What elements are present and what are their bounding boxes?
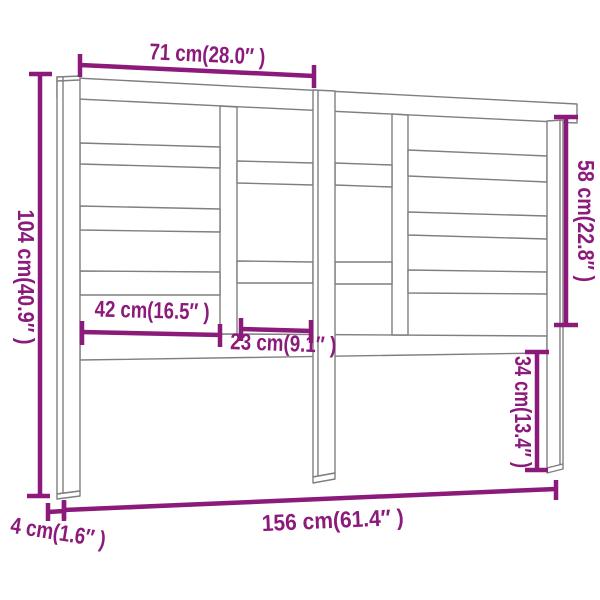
headboard-dimension-diagram: 71 cm(28.0″ ) 104 cm(40.9″ ) 58 cm(22.8″… [0, 0, 600, 600]
dim-label-overall-width: 156 cm(61.4″ ) [261, 504, 404, 536]
left-leg [57, 76, 80, 499]
dim-label-leg-height: 34 cm(13.4″ ) [510, 356, 536, 468]
slat [335, 163, 392, 187]
diagram-canvas: 71 cm(28.0″ ) 104 cm(40.9″ ) 58 cm(22.8″… [0, 0, 600, 600]
right-divider [392, 114, 408, 335]
dim-label-thickness: 4 cm(1.6″ ) [9, 512, 108, 553]
slat [80, 271, 220, 295]
dim-label-left-section-width: 42 cm(16.5″ ) [94, 296, 210, 325]
dim-label-slat-section-height: 58 cm(22.8″ ) [573, 160, 599, 282]
headboard-drawing [57, 76, 577, 499]
right-leg [547, 120, 563, 473]
dim-label-center-section-width: 23 cm(9.1″ ) [230, 328, 337, 358]
middle-leg [313, 90, 335, 483]
slat [408, 150, 547, 182]
slat [80, 206, 220, 232]
slat [335, 262, 392, 284]
dim-label-top-span: 71 cm(28.0″ ) [149, 38, 266, 69]
slat [408, 212, 547, 239]
left-divider [220, 106, 237, 334]
dimension-overall-width: 156 cm(61.4″ ) [64, 480, 556, 536]
slat [237, 261, 313, 283]
slat [80, 143, 220, 168]
slat [237, 161, 313, 185]
slat [408, 270, 547, 294]
dim-label-overall-height: 104 cm(40.9″ ) [13, 210, 39, 345]
dimension-leg-height: 34 cm(13.4″ ) [510, 352, 549, 470]
dimension-overall-height: 104 cm(40.9″ ) [13, 74, 52, 496]
